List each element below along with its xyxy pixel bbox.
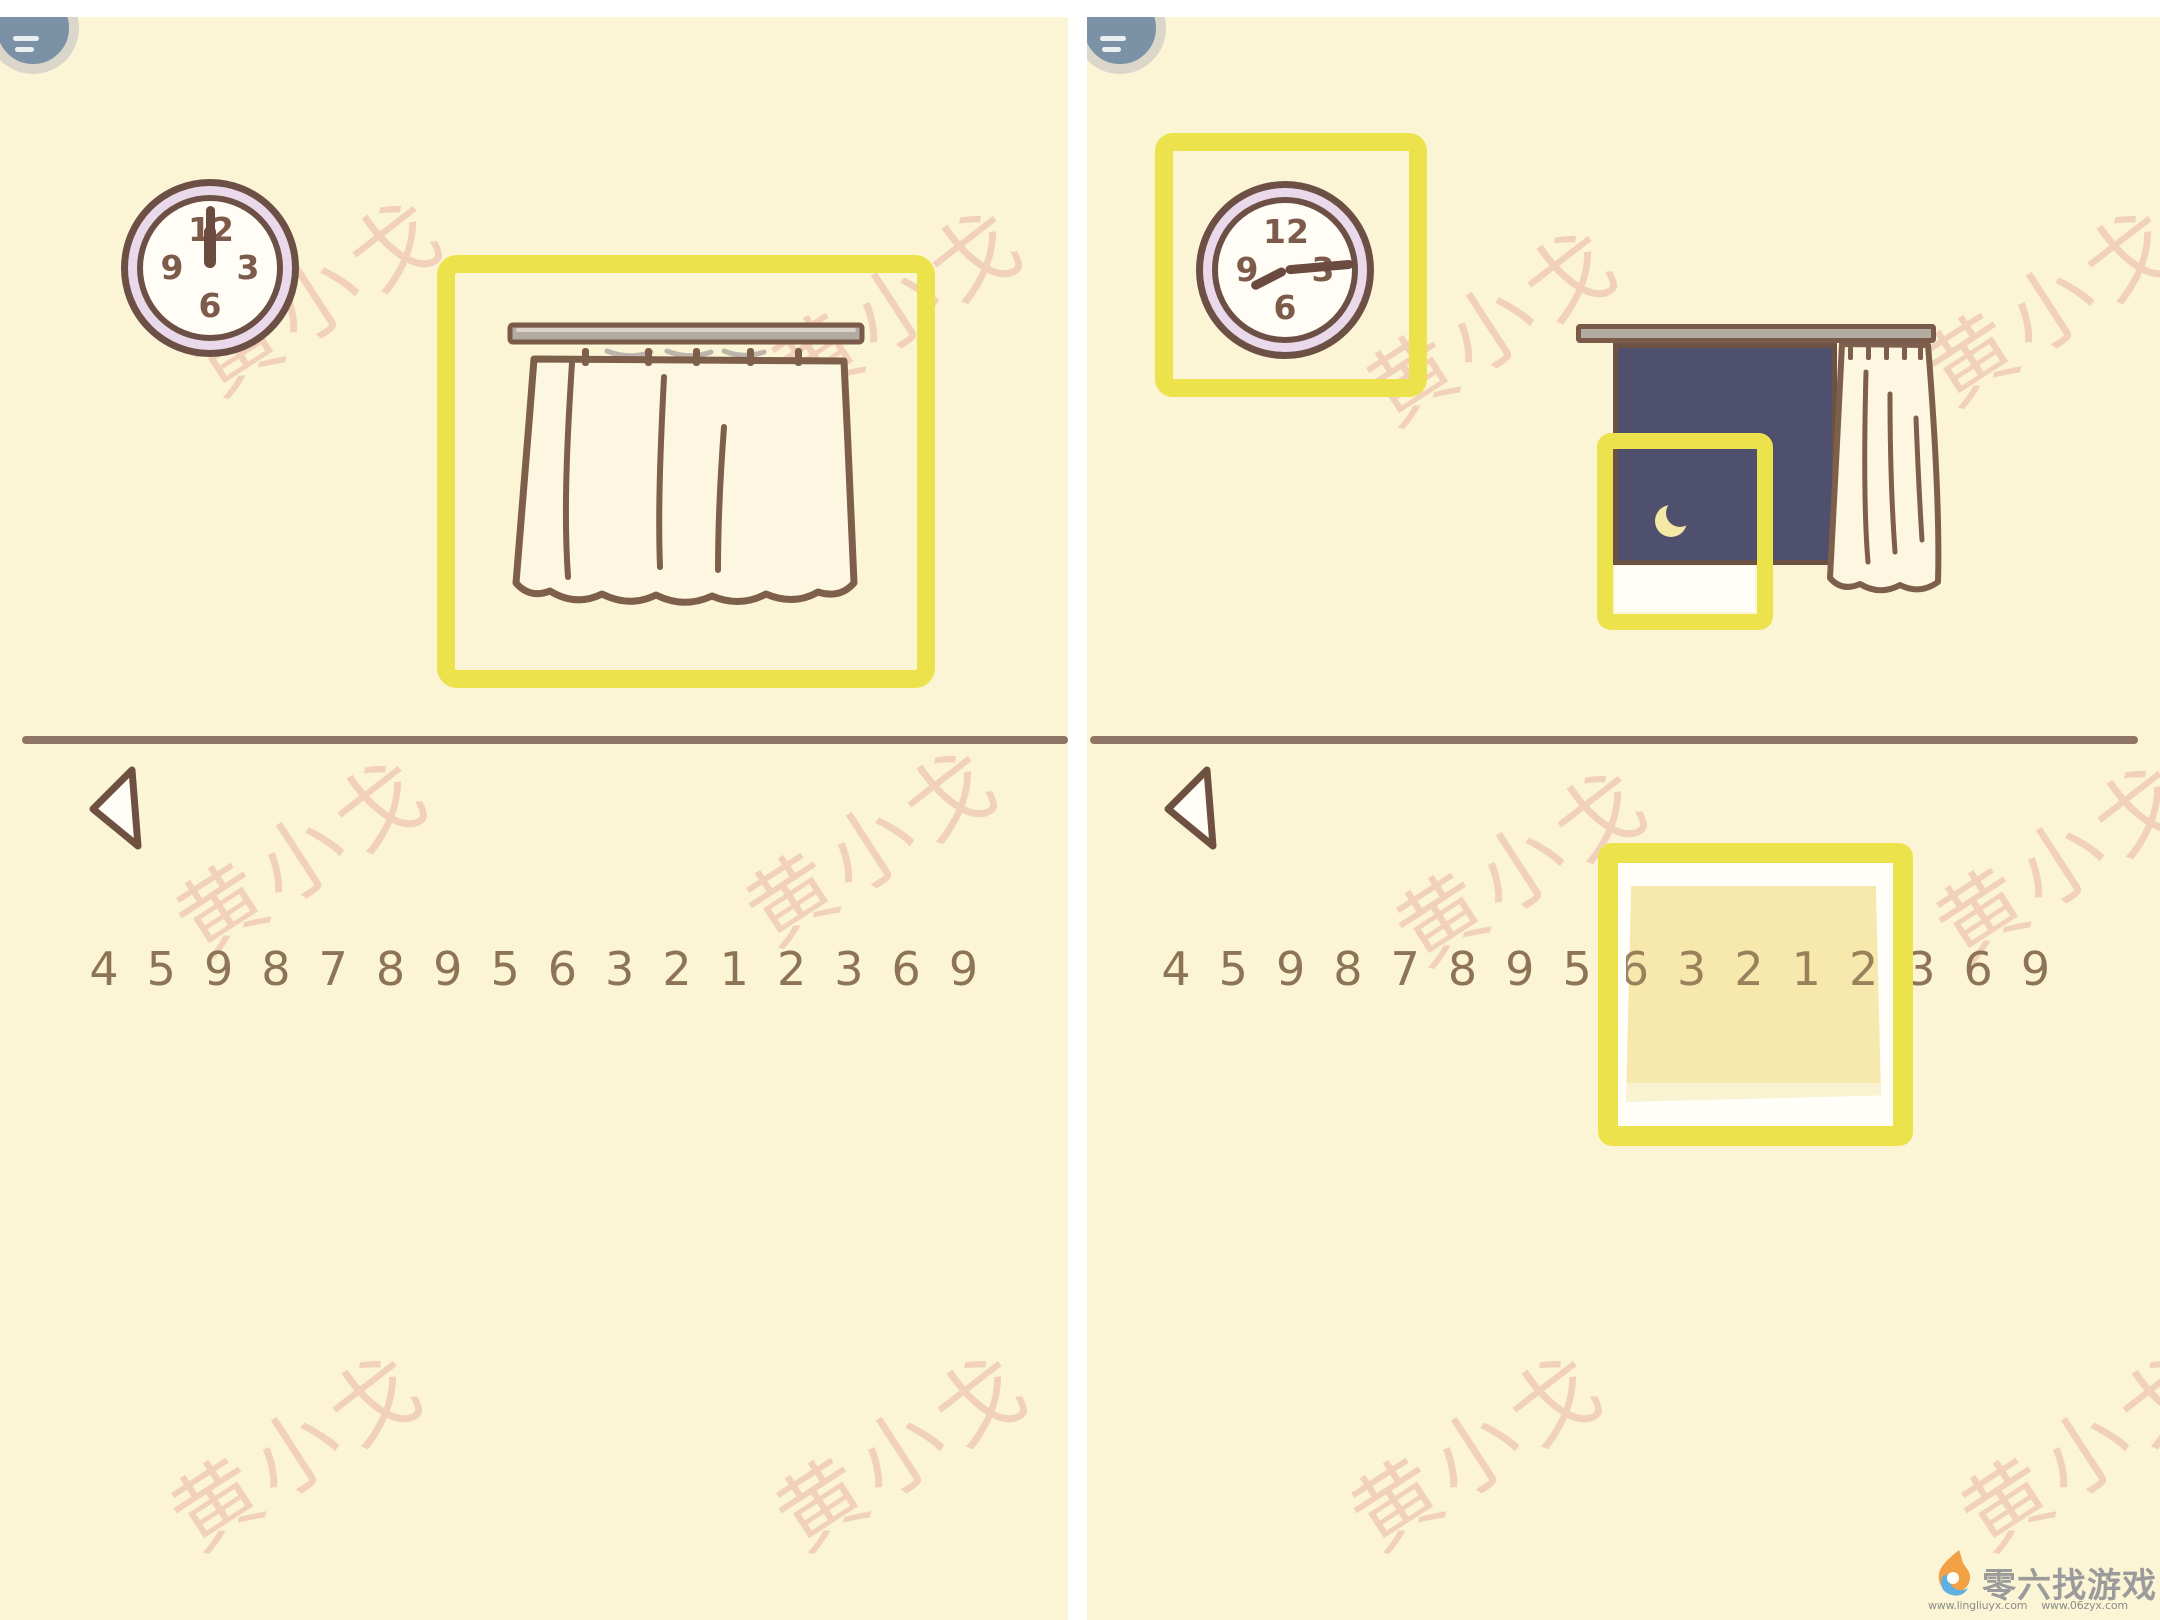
number-tile[interactable]: 3 bbox=[600, 945, 640, 993]
badge-text-line bbox=[13, 36, 39, 41]
corner-badge-icon[interactable] bbox=[0, 17, 79, 74]
number-tile[interactable]: 2 bbox=[772, 945, 812, 993]
curtain-hook bbox=[1866, 346, 1871, 360]
clock-numeral-6: 6 bbox=[188, 287, 232, 325]
number-tile[interactable]: 5 bbox=[141, 945, 181, 993]
number-tile[interactable]: 2 bbox=[657, 945, 697, 993]
walkthrough-composite: 黄小戈黄小戈黄小戈黄小戈黄小戈黄小戈黄小戈黄小戈黄小戈黄小戈黄小戈黄小戈 12 … bbox=[0, 0, 2160, 1620]
clock-hand bbox=[204, 226, 216, 268]
number-tile[interactable]: 9 bbox=[2016, 945, 2056, 993]
wall-clock-left[interactable]: 12 3 6 9 bbox=[121, 179, 299, 357]
number-tile[interactable]: 3 bbox=[829, 945, 869, 993]
curtain-body bbox=[1830, 344, 1938, 590]
curtain-hook bbox=[1884, 346, 1889, 360]
number-tile[interactable]: 6 bbox=[542, 945, 582, 993]
badge-text-line bbox=[1102, 47, 1121, 52]
corner-badge-icon[interactable] bbox=[1087, 17, 1166, 74]
number-tile[interactable]: 9 bbox=[199, 945, 239, 993]
back-arrow-icon[interactable] bbox=[1161, 764, 1225, 852]
number-tile[interactable]: 8 bbox=[256, 945, 296, 993]
number-tile[interactable]: 8 bbox=[1328, 945, 1368, 993]
clock-numeral-3: 3 bbox=[226, 249, 270, 287]
number-tile[interactable]: 5 bbox=[485, 945, 525, 993]
curtain-hook bbox=[1848, 346, 1853, 360]
number-tile[interactable]: 5 bbox=[1557, 945, 1597, 993]
curtain-hook bbox=[1902, 346, 1907, 360]
number-tile[interactable]: 9 bbox=[944, 945, 984, 993]
divider-line bbox=[1090, 736, 2138, 744]
highlight-box-answer bbox=[1598, 843, 1913, 1146]
site-url: www.lingliuyx.com bbox=[1928, 1599, 2027, 1612]
clock-numeral-9: 9 bbox=[150, 249, 194, 287]
number-tile[interactable]: 6 bbox=[886, 945, 926, 993]
badge-text-line bbox=[15, 47, 34, 52]
number-tile[interactable]: 7 bbox=[1385, 945, 1425, 993]
number-tile[interactable]: 9 bbox=[1500, 945, 1540, 993]
number-tile[interactable]: 4 bbox=[84, 945, 124, 993]
highlight-box-curtain bbox=[437, 255, 935, 688]
highlight-box-clock bbox=[1155, 133, 1427, 397]
number-tile[interactable]: 9 bbox=[428, 945, 468, 993]
number-tile[interactable]: 5 bbox=[1213, 945, 1253, 993]
number-tile[interactable]: 8 bbox=[1443, 945, 1483, 993]
site-urls: www.lingliuyx.com www.06zyx.com bbox=[1928, 1599, 2128, 1612]
number-tile[interactable]: 8 bbox=[371, 945, 411, 993]
curtain-rod bbox=[1576, 324, 1936, 343]
badge-text-line bbox=[1100, 36, 1126, 41]
number-tile[interactable]: 4 bbox=[1156, 945, 1196, 993]
divider-line bbox=[22, 736, 1068, 744]
site-url: www.06zyx.com bbox=[2041, 1599, 2128, 1612]
number-tile[interactable]: 9 bbox=[1271, 945, 1311, 993]
number-tile[interactable]: 7 bbox=[313, 945, 353, 993]
site-logo-flame-icon bbox=[1930, 1549, 1976, 1599]
highlight-box-moon bbox=[1597, 433, 1773, 630]
back-arrow-icon[interactable] bbox=[86, 764, 150, 852]
number-tile[interactable]: 6 bbox=[1958, 945, 1998, 993]
number-tile[interactable]: 1 bbox=[714, 945, 754, 993]
curtain-hook bbox=[1918, 346, 1923, 360]
open-curtain[interactable] bbox=[1822, 330, 1950, 615]
